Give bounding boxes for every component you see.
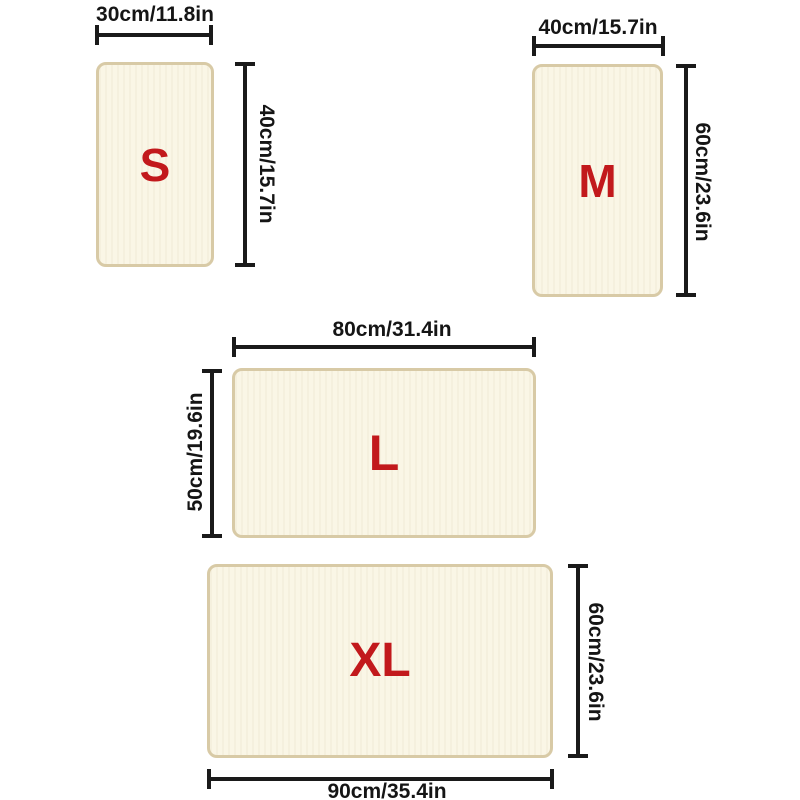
l-mat: L: [232, 368, 536, 538]
m-mat: M: [532, 64, 663, 297]
l-width-dimension-label: 80cm/31.4in: [332, 318, 451, 342]
s-size-letter: S: [140, 142, 171, 188]
m-width-dimension-line: [532, 44, 665, 48]
s-width-dimension-label: 30cm/11.8in: [96, 3, 214, 27]
s-width-dimension-line: [95, 33, 213, 37]
xl-size-letter: XL: [349, 637, 410, 685]
s-mat: S: [96, 62, 214, 267]
l-height-dimension-line: [210, 369, 214, 538]
m-width-dimension-label: 40cm/15.7in: [538, 16, 657, 40]
xl-height-dimension-line: [576, 564, 580, 758]
size-chart-canvas: 30cm/11.8in S 40cm/15.7in 40cm/15.7in M …: [0, 0, 800, 800]
s-height-dimension-label: 40cm/15.7in: [254, 104, 278, 223]
xl-height-dimension-label: 60cm/23.6in: [583, 602, 607, 721]
xl-mat: XL: [207, 564, 553, 758]
l-width-dimension-line: [232, 345, 536, 349]
l-size-letter: L: [369, 428, 400, 478]
m-size-letter: M: [578, 158, 616, 204]
xl-width-dimension-label: 90cm/35.4in: [327, 780, 446, 800]
m-height-dimension-label: 60cm/23.6in: [690, 122, 714, 241]
l-height-dimension-label: 50cm/19.6in: [184, 392, 208, 511]
m-height-dimension-line: [684, 64, 688, 297]
s-height-dimension-line: [243, 62, 247, 267]
